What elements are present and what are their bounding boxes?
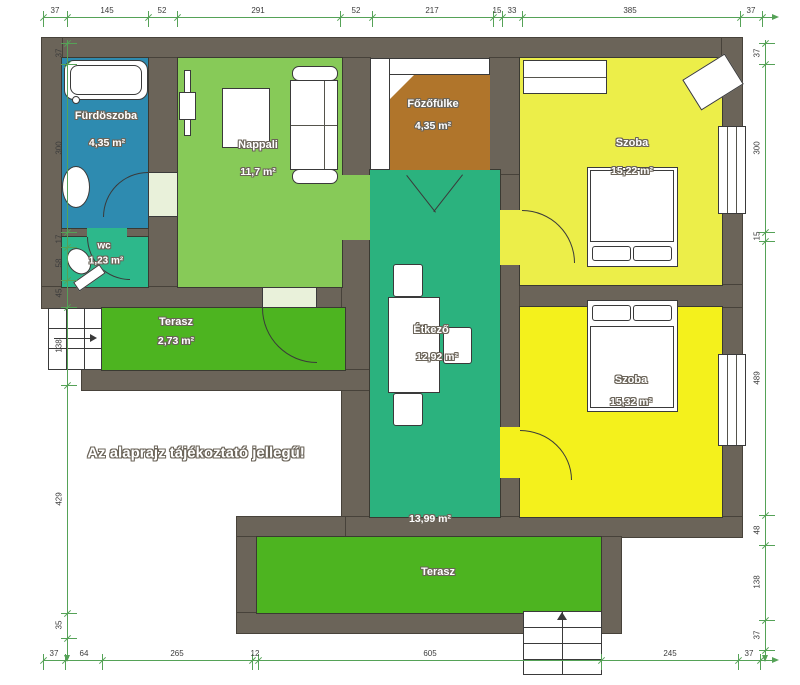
dimension-label: 52 [158, 6, 167, 15]
dimension-tick [759, 515, 775, 516]
dimension-arrow [64, 655, 70, 662]
dimension-tick [61, 280, 77, 281]
wall-entry-stub [317, 287, 345, 308]
room1-label: Szoba [616, 137, 648, 149]
dimension-label: 385 [623, 6, 636, 15]
wc-label: wc [97, 241, 110, 252]
dimension-label: 291 [251, 6, 264, 15]
dimension-tick [61, 232, 77, 233]
window-room2-frame-line [727, 355, 728, 445]
dimension-label: 15 [753, 232, 762, 241]
terrace-bottom-label: Terasz [421, 566, 455, 578]
bed-room1-blanket [590, 170, 674, 242]
stairs-bottom-line-v [562, 611, 563, 675]
dimension-tick [61, 43, 77, 44]
dimension-arrow [762, 655, 768, 662]
window-room2 [718, 354, 746, 446]
living-dining-passage [342, 175, 370, 240]
bathtub-tap [72, 96, 80, 104]
dimension-tick [61, 247, 77, 248]
dimension-label: 37 [51, 6, 60, 15]
stairs-left-line-v2 [84, 308, 85, 370]
wall-top [42, 38, 742, 58]
dimension-tick [738, 654, 739, 670]
dimension-label: 217 [425, 6, 438, 15]
entry-door-threshold [262, 287, 317, 308]
dimension-tick [61, 638, 77, 639]
dining-table [388, 297, 440, 393]
dimension-tick [759, 620, 775, 621]
dining-label: Étkező [413, 324, 448, 336]
dimension-label: 429 [55, 492, 64, 505]
dimension-tick [740, 11, 741, 27]
bed-room2-pillow-left [592, 305, 631, 321]
dimension-label: 37 [50, 649, 59, 658]
dimension-label: 15 [493, 6, 502, 15]
dimension-tick [759, 650, 775, 651]
dimension-tick [759, 43, 775, 44]
dimension-line-bottom [43, 660, 772, 661]
living-label: Nappali [238, 139, 278, 151]
kitchen-counter-left [370, 58, 390, 170]
bed-room1-pillow-left [592, 246, 631, 261]
wall-bath-right-lower [148, 217, 178, 287]
dimension-arrow [772, 14, 779, 20]
dimension-label: 37 [753, 49, 762, 58]
hall-area-label: 13,99 m² [409, 513, 451, 525]
dimension-label: 138 [55, 339, 64, 352]
dimension-label: 33 [508, 6, 517, 15]
wall-dining-right-c [500, 478, 520, 517]
dining-chair-top [393, 264, 423, 297]
sofa-armrest-top [292, 66, 338, 81]
dimension-tick [601, 654, 602, 670]
sofa-armrest-bottom [292, 169, 338, 184]
wardrobe-line [524, 77, 606, 78]
dimension-tick [148, 11, 149, 27]
dimension-label: 37 [55, 49, 64, 58]
dimension-tick [61, 64, 77, 65]
room2-area-label: 15,32 m² [610, 396, 652, 408]
bathtub-inner [70, 65, 142, 95]
dimension-label: 300 [753, 141, 762, 154]
dimension-label: 300 [55, 141, 64, 154]
wall-left [42, 38, 62, 308]
floor-plan: Fürdöszoba 4,35 m² wc 1,23 m² Nappali 11… [0, 0, 800, 685]
dimension-tick [61, 385, 77, 386]
dimension-tick [340, 11, 341, 27]
stairs-left-line-h1 [48, 328, 102, 329]
dining-area-label: 12,92 m² [416, 351, 458, 363]
dimension-label: 37 [747, 6, 756, 15]
dimension-tick [759, 241, 775, 242]
bathroom-area-label: 4,35 m² [89, 137, 125, 149]
dimension-label: 37 [753, 631, 762, 640]
wc-area-label: 1,23 m² [89, 256, 123, 267]
dimension-label: 489 [753, 371, 762, 384]
dimension-tick [759, 545, 775, 546]
disclaimer-text: Az alaprajz tájékoztató jellegű! [87, 445, 305, 462]
wall-terrace2-topleft [237, 517, 345, 537]
dimension-line-top [43, 17, 772, 18]
wall-bath-right-upper [148, 58, 178, 172]
bath-door-threshold [148, 172, 178, 217]
wall-dining-right-a [500, 175, 520, 210]
wall-terrace-top [42, 287, 262, 308]
dimension-label: 265 [170, 649, 183, 658]
window-room1-frame-line [727, 127, 728, 213]
dimension-label: 64 [80, 649, 89, 658]
dimension-tick [759, 64, 775, 65]
wall-kitchen-right [490, 58, 520, 175]
dimension-label: 48 [753, 526, 762, 535]
room1-door-threshold [500, 210, 520, 265]
dimension-tick [61, 613, 77, 614]
dimension-tick [372, 11, 373, 27]
dimension-label: 138 [753, 575, 762, 588]
wall-terrace2-right [601, 537, 621, 633]
window-room1 [718, 126, 746, 214]
living-area-label: 11,7 m² [240, 166, 276, 178]
dimension-label: 12 [251, 649, 260, 658]
dimension-label: 58 [55, 259, 64, 268]
dimension-tick [760, 654, 761, 670]
dimension-tick [102, 654, 103, 670]
dimension-tick [67, 11, 68, 27]
dimension-label: 35 [55, 621, 64, 630]
dimension-arrow [772, 657, 779, 663]
dimension-label: 52 [352, 6, 361, 15]
sofa-seam-horizontal [291, 125, 337, 126]
kitchenette-label: Főzőfülke [407, 98, 458, 110]
dimension-label: 245 [663, 649, 676, 658]
dimension-label: 605 [423, 649, 436, 658]
wall-dining-left-upper [342, 58, 370, 175]
room1-area-label: 15,22 m² [611, 165, 653, 177]
dimension-tick [522, 11, 523, 27]
dimension-line-left [67, 40, 68, 655]
window-room2-frame-line2 [736, 355, 737, 445]
dimension-label: 145 [100, 6, 113, 15]
tv-board-shelf [179, 92, 196, 120]
dimension-tick [43, 654, 44, 670]
terrace-left-area-label: 2,73 m² [158, 335, 194, 347]
bed-room1-pillow-right [633, 246, 672, 261]
wall-bottom [345, 517, 742, 537]
dining-chair-bottom [393, 393, 423, 426]
wc-door-opening [87, 228, 127, 237]
room2-label: Szoba [615, 374, 647, 386]
dimension-tick [502, 11, 503, 27]
wall-bath-wc-right [127, 228, 148, 237]
room2-door-threshold [500, 427, 520, 478]
dimension-tick [177, 11, 178, 27]
dimension-tick [61, 307, 77, 308]
dimension-label: 45 [55, 289, 64, 298]
stairs-left-arrow-head [90, 334, 97, 342]
dimension-tick [43, 11, 44, 27]
dimension-label: 37 [745, 649, 754, 658]
dimension-line-right [765, 40, 766, 655]
dimension-tick [762, 11, 763, 27]
window-room1-frame-line2 [736, 127, 737, 213]
bed-room2-pillow-right [633, 305, 672, 321]
terrace-left-label: Terasz [159, 316, 193, 328]
stairs-bottom-arrow-head [557, 612, 567, 620]
wall-strip-bottom [82, 370, 370, 390]
wall-dining-right-b [500, 265, 520, 427]
dimension-label: 17 [55, 235, 64, 244]
bathroom-label: Fürdöszoba [75, 110, 137, 122]
kitchenette-area-label: 4,35 m² [415, 120, 451, 132]
